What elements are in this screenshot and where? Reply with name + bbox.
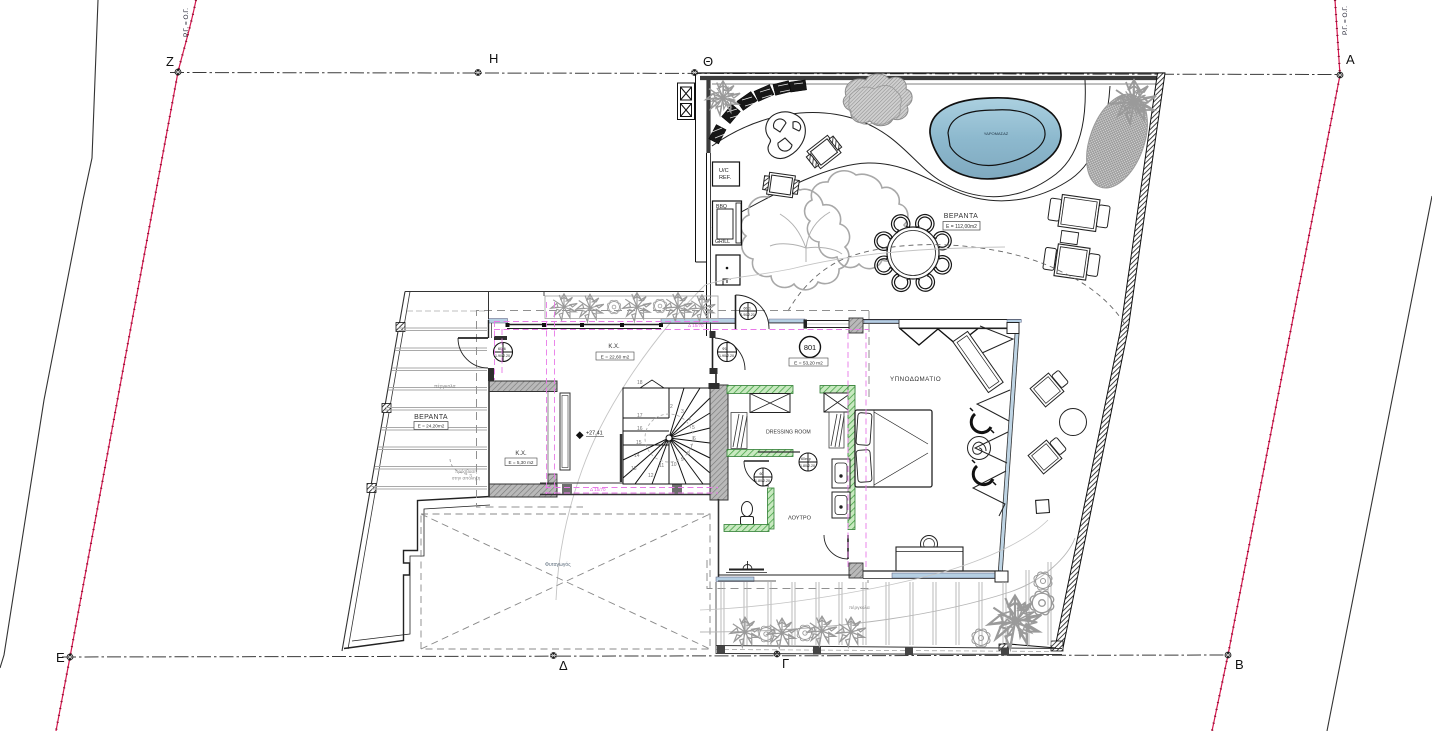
svg-text:17: 17 [637,413,643,419]
svg-text:14: 14 [634,453,640,459]
svg-text:+27,41: +27,41 [586,431,603,437]
svg-text:Γ: Γ [782,656,789,671]
svg-text:Ρ.Γ. = Ο.Γ.: Ρ.Γ. = Ο.Γ. [1342,6,1349,35]
svg-text:13: 13 [631,466,637,472]
svg-text:1.80/2.20: 1.80/2.20 [800,464,815,468]
svg-text:BBQ: BBQ [716,204,727,210]
svg-text:5: 5 [692,425,695,431]
svg-text:60exp: 60exp [801,457,811,461]
svg-text:K.X.: K.X. [608,344,620,350]
svg-text:U/C: U/C [719,168,729,174]
svg-text:E: E [56,650,65,665]
svg-text:7: 7 [690,444,693,450]
svg-text:Δ 15/70: Δ 15/70 [590,487,606,492]
svg-text:πρόσβαση: πρόσβαση [455,468,477,474]
svg-text:60x1: 60x1 [744,307,751,311]
svg-text:REF.: REF. [719,175,732,181]
svg-text:6: 6 [693,436,696,442]
svg-text:60: 60 [760,472,764,476]
svg-text:Ε = 5,30 m2: Ε = 5,30 m2 [509,460,534,465]
svg-text:K.X.: K.X. [515,451,527,457]
svg-text:Φυταγωγός: Φυταγωγός [545,561,571,568]
svg-text:11: 11 [659,463,664,469]
svg-text:GRILL: GRILL [715,239,730,245]
svg-text:Ε = 24,20m2: Ε = 24,20m2 [418,424,445,429]
svg-text:Δ: Δ [559,658,568,673]
svg-text:3: 3 [681,409,684,415]
svg-text:πέργκολα: πέργκολα [434,383,456,390]
svg-text:Z: Z [166,54,174,69]
svg-text:9: 9 [681,457,684,463]
svg-text:B: B [1235,657,1244,672]
svg-text:DRESSING ROOM: DRESSING ROOM [766,430,811,436]
svg-text:801: 801 [804,343,816,352]
svg-text:16: 16 [637,426,643,432]
svg-text:ΥΠΝΟΔΩΜΑΤΙΟ: ΥΠΝΟΔΩΜΑΤΙΟ [890,376,941,383]
svg-text:Ε = 53,20 m2: Ε = 53,20 m2 [794,361,823,367]
svg-text:1.90/2.20: 1.90/2.20 [495,354,510,358]
svg-text:4: 4 [688,417,691,423]
svg-text:Ρ.Γ. = Ο.Γ.: Ρ.Γ. = Ο.Γ. [183,8,190,37]
svg-text:2: 2 [670,404,673,410]
svg-text:Φ1: Φ1 [722,347,727,351]
svg-text:1.90/2.20: 1.90/2.20 [719,354,734,358]
svg-text:8: 8 [687,451,690,457]
svg-text:Θ: Θ [703,54,713,69]
svg-text:10: 10 [671,462,677,468]
svg-text:Δ 15/70: Δ 15/70 [688,323,704,328]
svg-text:H: H [489,51,498,66]
svg-text:πέργκολα: πέργκολα [849,604,870,611]
svg-text:15: 15 [636,440,642,446]
svg-text:1.80/2.20: 1.80/2.20 [755,479,770,483]
svg-text:18: 18 [637,380,643,386]
svg-text:ΒΕΡΑΝΤΑ: ΒΕΡΑΝΤΑ [414,414,448,421]
svg-text:1.90/2.20: 1.90/2.20 [741,313,755,317]
svg-text:Ε = 112,00m2: Ε = 112,00m2 [946,224,977,230]
svg-text:Ε = 22,60 m2: Ε = 22,60 m2 [601,355,630,361]
svg-text:ΒΕΡΑΝΤΑ: ΒΕΡΑΝΤΑ [944,213,978,220]
svg-text:A: A [1346,52,1355,67]
svg-text:ΥΔΡΟΜΑΣΑΖ: ΥΔΡΟΜΑΣΑΖ [984,131,1009,136]
svg-text:ΛΟΥΤΡΟ: ΛΟΥΤΡΟ [788,516,812,522]
svg-text:12: 12 [648,473,654,479]
